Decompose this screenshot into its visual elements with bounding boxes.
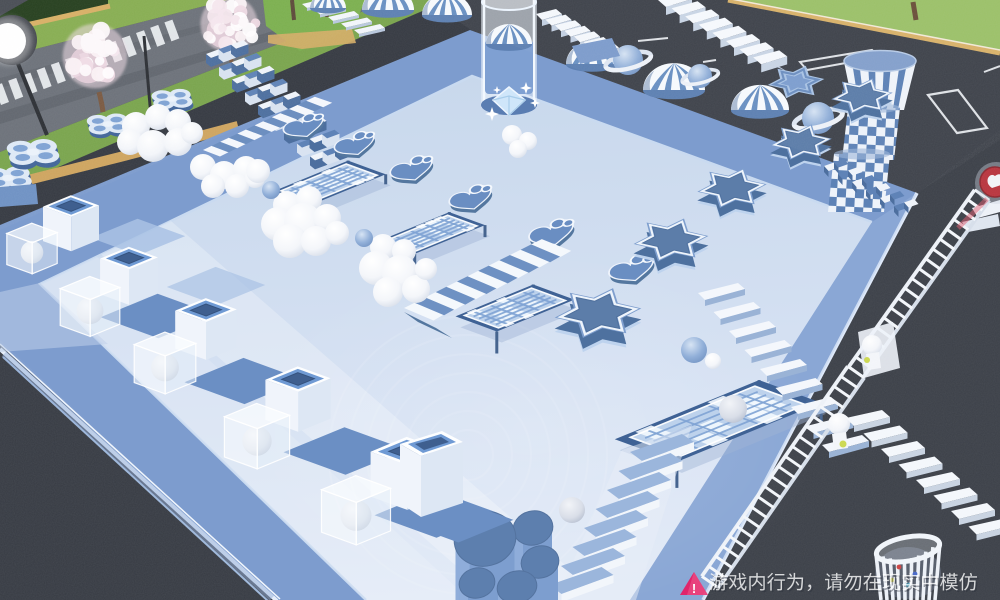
svg-text:!: ! bbox=[692, 581, 696, 596]
